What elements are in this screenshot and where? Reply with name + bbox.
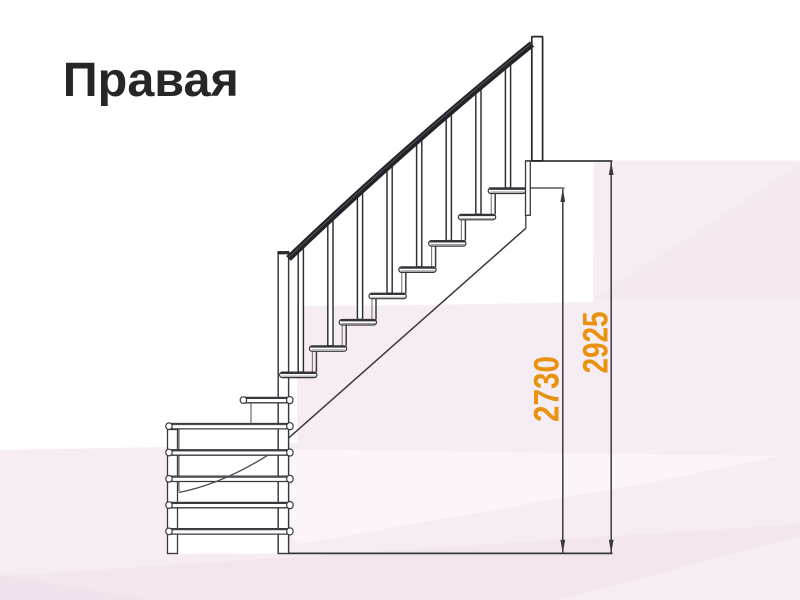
svg-text:2925: 2925	[576, 312, 616, 374]
svg-text:2730: 2730	[526, 356, 566, 422]
svg-text:Правая: Правая	[63, 54, 239, 107]
